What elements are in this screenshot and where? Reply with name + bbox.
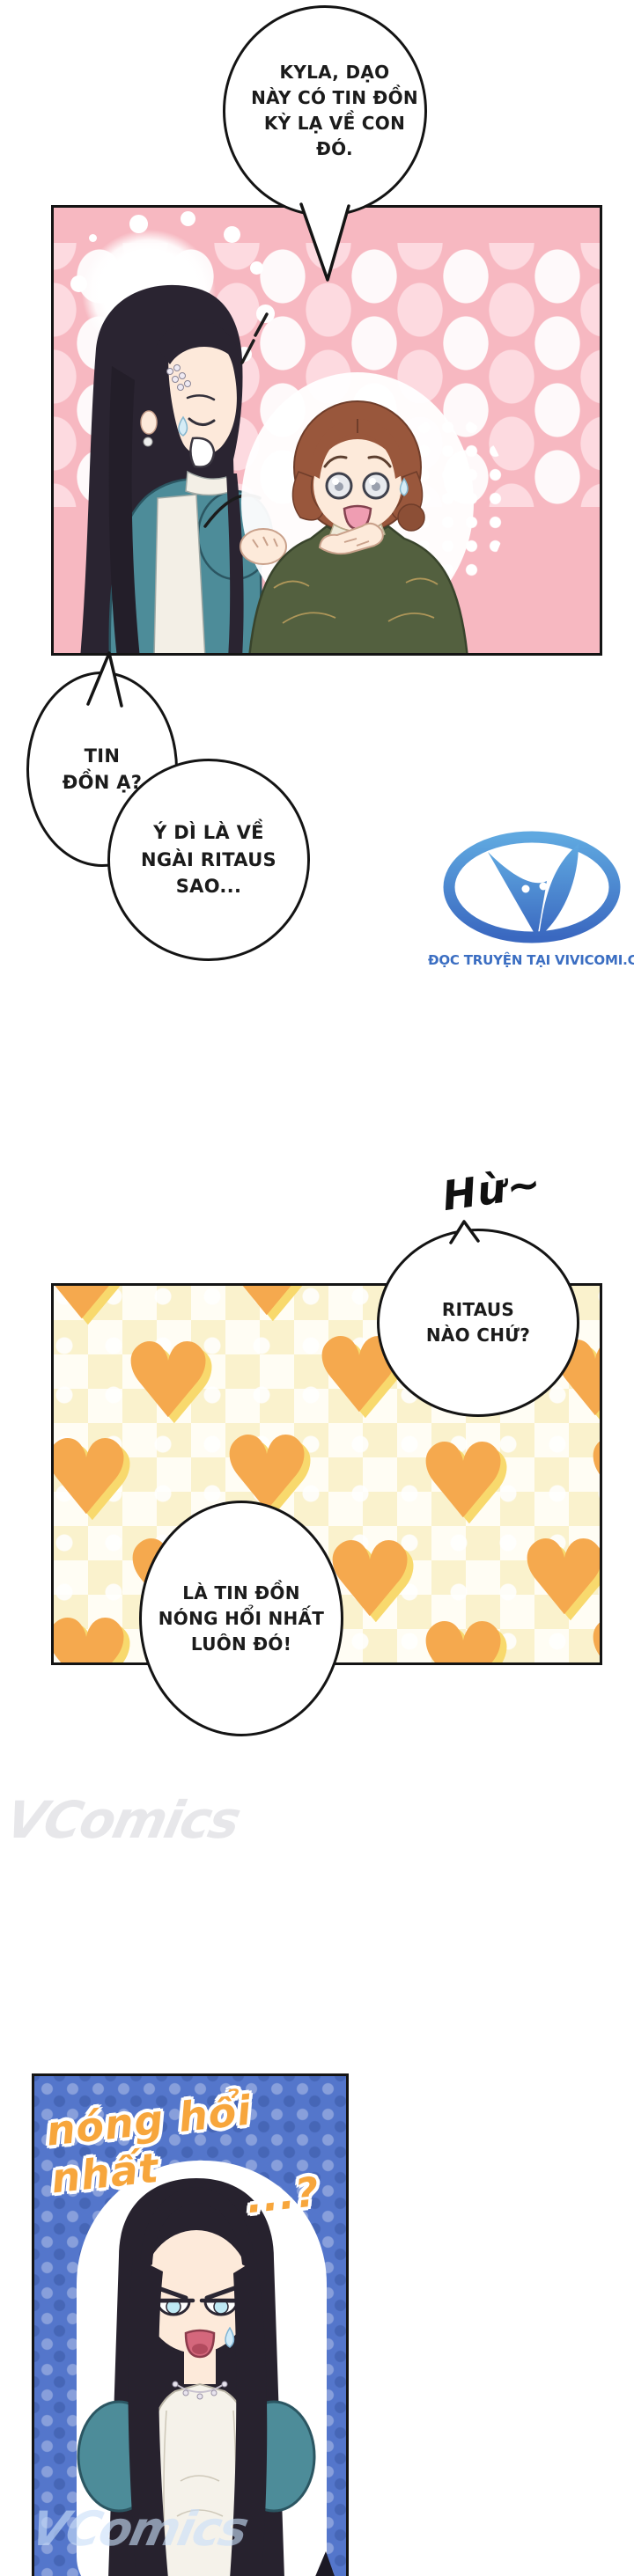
bubble-text-line: ĐỒN Ạ?	[63, 769, 143, 796]
bubble-text: Ý DÌ LÀ VỀ NGÀI RITAUS SAO...	[141, 819, 276, 899]
character-aunt	[240, 372, 474, 656]
bubble-text-line: LUÔN ĐÓ!	[158, 1632, 325, 1657]
bubble-text-line: NÓNG HỔI NHẤT	[158, 1606, 325, 1632]
bubble-text: KYLA, DẠO NÀY CÓ TIN ĐỒN KỲ LẠ VỀ CON ĐÓ…	[232, 60, 418, 162]
heart-icon: ♥	[51, 1605, 133, 1665]
bubble-text-line: RITAUS	[426, 1297, 530, 1323]
sfx-echo-line: nóng hổi nhất	[44, 2087, 254, 2203]
bubble-text-line: TIN	[63, 743, 143, 769]
logo-caption: ĐỌC TRUYỆN TẠI VIVICOMI.CO	[428, 952, 634, 968]
bubble-text-line: SAO...	[141, 873, 276, 899]
bubble-text-line: NGÀI RITAUS	[141, 847, 276, 873]
speech-bubble-scoff: RITAUS NÀO CHỨ?	[377, 1229, 579, 1417]
heart-icon: ♥	[417, 1429, 510, 1533]
vcomics-watermark-bottom: VComics	[26, 2501, 252, 2557]
bubble-text: RITAUS NÀO CHỨ?	[426, 1297, 530, 1348]
bubble-text-line: NÀO CHỨ?	[426, 1323, 530, 1348]
heart-icon: ♥	[417, 1609, 510, 1665]
logo-mark	[437, 831, 627, 950]
character-kyla	[80, 285, 272, 656]
speech-bubble-clarify: Ý DÌ LÀ VỀ NGÀI RITAUS SAO...	[107, 759, 310, 961]
bubble-text: LÀ TIN ĐỒN NÓNG HỔI NHẤT LUÔN ĐÓ!	[158, 1581, 325, 1657]
bubble-text-line: NÀY CÓ TIN ĐỒN	[251, 85, 418, 111]
comic-page: KYLA, DẠO NÀY CÓ TIN ĐỒN KỲ LẠ VỀ CON ĐÓ…	[0, 0, 634, 2576]
bubble-text-line: Ý DÌ LÀ VỀ	[141, 819, 276, 846]
heart-icon: ♥	[220, 1283, 313, 1331]
bubble-text: TIN ĐỒN Ạ?	[63, 743, 143, 796]
vivicomi-logo: ĐỌC TRUYỆN TẠI VIVICOMI.CO	[428, 831, 634, 968]
heart-icon: ♥	[51, 1426, 133, 1530]
speech-bubble-greeting: KYLA, DẠO NÀY CÓ TIN ĐỒN KỲ LẠ VỀ CON ĐÓ…	[223, 5, 427, 217]
heart-icon: ♥	[584, 1424, 602, 1528]
panel-conversation	[51, 205, 602, 656]
bubble-text-line: KYLA, DẠO	[251, 60, 418, 85]
vcomics-watermark-mid: VComics	[1, 1790, 245, 1850]
bubble-text-line: KỲ LẠ VỀ CON	[251, 111, 418, 136]
bubble-text-line: ĐÓ.	[251, 136, 418, 162]
sfx-scoff: Hừ~	[439, 1155, 577, 1220]
heart-icon: ♥	[584, 1605, 602, 1665]
speech-bubble-gossip: LÀ TIN ĐỒN NÓNG HỔI NHẤT LUÔN ĐÓ!	[139, 1501, 343, 1736]
bubble-text-line: LÀ TIN ĐỒN	[158, 1581, 325, 1606]
heart-icon: ♥	[122, 1329, 215, 1433]
characters-illustration	[54, 208, 602, 656]
heart-icon: ♥	[51, 1283, 129, 1334]
